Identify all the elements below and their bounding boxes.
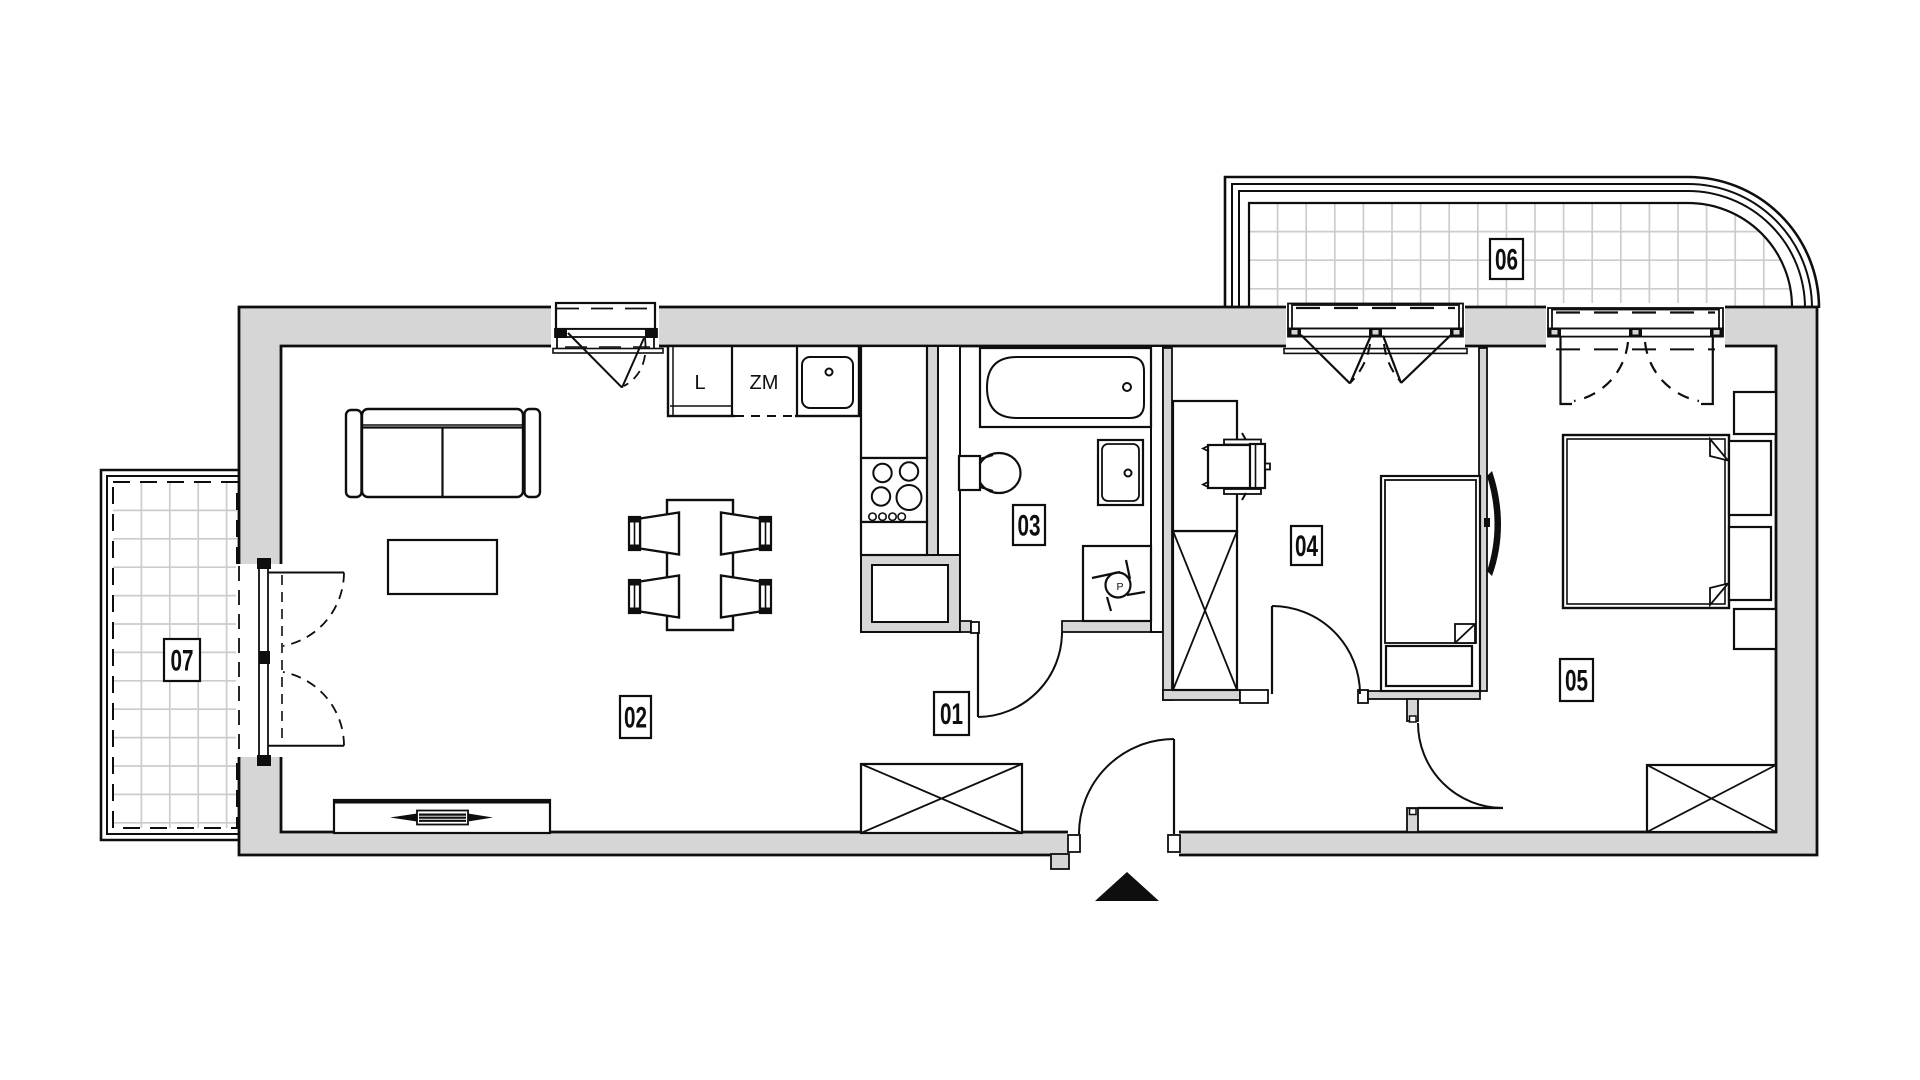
svg-text:06: 06 [1495,244,1518,277]
svg-text:04: 04 [1295,530,1318,563]
svg-text:05: 05 [1565,665,1588,698]
svg-text:03: 03 [1018,510,1041,543]
svg-text:07: 07 [171,645,194,678]
svg-text:L: L [694,372,705,394]
svg-text:ZM: ZM [750,372,779,394]
svg-text:01: 01 [940,698,963,731]
svg-text:02: 02 [624,702,647,735]
svg-text:P: P [1116,581,1123,593]
